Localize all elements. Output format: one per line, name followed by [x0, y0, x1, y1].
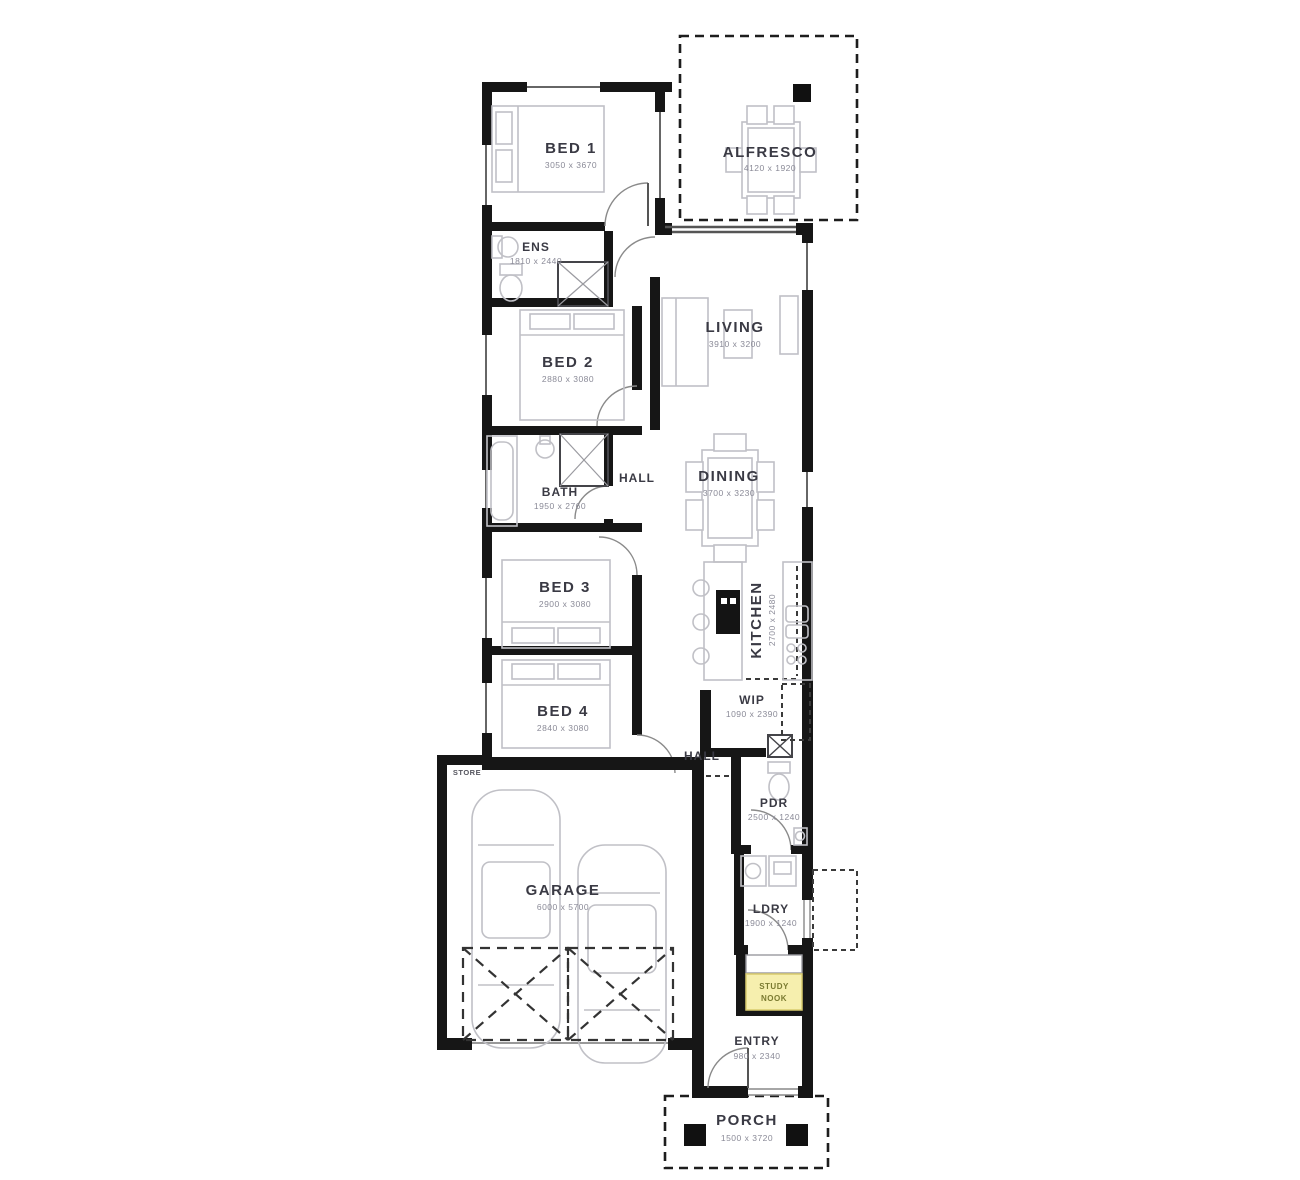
- store-label: STORE: [453, 768, 481, 777]
- study-nook-highlight: [746, 974, 802, 1010]
- garage-cars: [463, 790, 673, 1063]
- internal-walls: [482, 183, 857, 1088]
- room-labels: BED 1 3050 x 3670 ENS 1810 x 2440 LIVING…: [453, 140, 800, 1061]
- porch-post-right: [786, 1124, 808, 1146]
- living-label: LIVING: [705, 319, 764, 336]
- floor-plan-drawing: ALFRESCO 4120 x 1920 PORCH 1500 x 3720: [0, 0, 1300, 1180]
- living-dims: 3910 x 3200: [709, 339, 761, 349]
- porch-post-left: [684, 1124, 706, 1146]
- ens-fixtures: [492, 236, 608, 306]
- bath-fixtures: [487, 434, 608, 526]
- alfresco-post: [793, 84, 811, 102]
- porch-dims: 1500 x 3720: [721, 1133, 773, 1143]
- porch-label: PORCH: [716, 1112, 778, 1129]
- kitchen-dims: 2700 x 2480: [767, 594, 777, 646]
- entry-dims: 980 x 2340: [733, 1051, 780, 1061]
- dining-label: DINING: [698, 468, 760, 485]
- dining-furniture: [686, 434, 774, 562]
- bed2-label: BED 2: [542, 354, 594, 371]
- ens-label: ENS: [522, 240, 550, 254]
- hall-upper-label: HALL: [619, 471, 655, 485]
- bed3-dims: 2900 x 3080: [539, 599, 591, 609]
- entry-label: ENTRY: [734, 1034, 779, 1048]
- bed1-dims: 3050 x 3670: [545, 160, 597, 170]
- pdr-dims: 2500 x 1240: [748, 812, 800, 822]
- garage-dims: 6000 x 5700: [537, 902, 589, 912]
- wip-dims: 1090 x 2390: [726, 709, 778, 719]
- ldry-dims: 1900 x 1240: [745, 918, 797, 928]
- kitchen-label: KITCHEN: [748, 581, 765, 658]
- service-pad: [813, 870, 857, 950]
- garage-label: GARAGE: [526, 882, 601, 899]
- bath-dims: 1950 x 2760: [534, 501, 586, 511]
- porch-area: PORCH 1500 x 3720: [665, 1096, 828, 1168]
- pdr-label: PDR: [760, 796, 788, 810]
- bed1-label: BED 1: [545, 140, 597, 157]
- study-nook-label-1: STUDY: [759, 982, 789, 991]
- bed4-dims: 2840 x 3080: [537, 723, 589, 733]
- ens-dims: 1810 x 2440: [510, 256, 562, 266]
- bed2-dims: 2880 x 3080: [542, 374, 594, 384]
- study-nook-area: STUDY NOOK: [746, 955, 802, 1010]
- ldry-label: LDRY: [753, 902, 789, 916]
- bed4-label: BED 4: [537, 703, 589, 720]
- wip-label: WIP: [739, 693, 765, 707]
- hall-lower-label: HALL: [684, 749, 720, 763]
- alfresco-area: ALFRESCO 4120 x 1920: [680, 36, 857, 220]
- parking-bays: [463, 948, 673, 1040]
- study-nook-label-2: NOOK: [761, 994, 787, 1003]
- alfresco-label: ALFRESCO: [723, 144, 818, 161]
- bed3-label: BED 3: [539, 579, 591, 596]
- floor-plan-page: ALFRESCO 4120 x 1920 PORCH 1500 x 3720: [0, 0, 1300, 1180]
- dining-dims: 3700 x 3230: [703, 488, 755, 498]
- alfresco-dims: 4120 x 1920: [744, 163, 796, 173]
- ldry-fixtures: [741, 856, 796, 886]
- bath-label: BATH: [542, 485, 578, 499]
